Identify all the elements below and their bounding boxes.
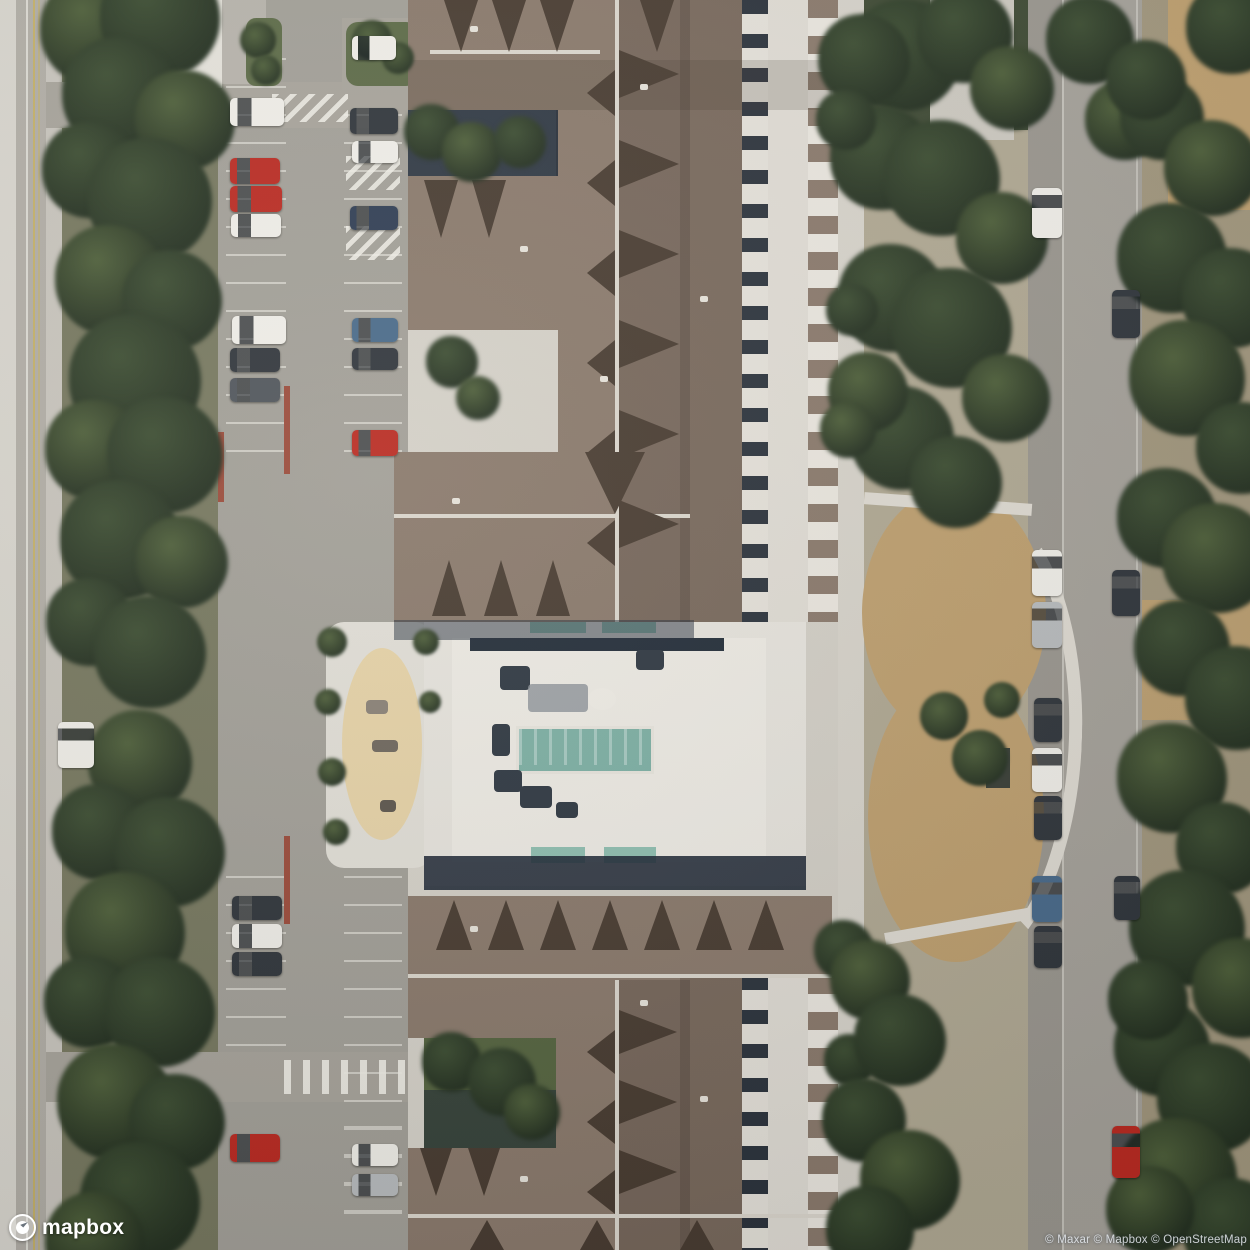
roof-gable	[619, 410, 679, 458]
parked-car	[1034, 698, 1062, 742]
pool-furniture	[636, 650, 664, 670]
parked-car	[1032, 188, 1062, 238]
satellite-map-canvas[interactable]: mapbox © Maxar © Mapbox © OpenStreetMap	[0, 0, 1250, 1250]
parked-car	[352, 1144, 398, 1166]
pool-lanes	[519, 729, 645, 765]
parked-car	[352, 141, 398, 163]
roof-gable	[470, 1220, 504, 1250]
roof-gable	[640, 0, 674, 52]
parked-car	[230, 378, 280, 402]
hot-tub	[588, 688, 616, 710]
roof-gable	[587, 1100, 615, 1144]
roof-gable	[580, 1220, 614, 1250]
roof-vent	[452, 498, 460, 504]
tree	[816, 90, 876, 150]
roof-gable	[540, 0, 574, 52]
roof-gable	[420, 1148, 452, 1196]
shrub	[952, 730, 1008, 786]
roof-gable	[748, 900, 784, 950]
roof-gable	[587, 1030, 615, 1074]
tree	[970, 46, 1054, 130]
tree	[94, 596, 206, 708]
roof-gable	[488, 900, 524, 950]
building-roof	[408, 976, 556, 1038]
pool-furniture	[528, 684, 588, 712]
roof-vent	[470, 26, 478, 32]
roof-gable	[424, 180, 458, 238]
tree	[910, 436, 1002, 528]
play-equipment	[372, 740, 398, 752]
tree	[826, 284, 878, 336]
tree	[456, 376, 500, 420]
parked-car	[230, 348, 280, 372]
parked-car	[230, 1134, 280, 1162]
tree	[1106, 40, 1186, 120]
roof-gable	[587, 70, 615, 116]
parked-car	[352, 36, 396, 60]
parked-car	[350, 206, 398, 230]
parked-car	[1112, 570, 1140, 616]
tree	[1164, 120, 1250, 216]
parked-car	[1032, 748, 1062, 792]
red-curb	[284, 386, 290, 474]
shrub	[419, 691, 441, 713]
tree	[136, 516, 228, 608]
lane-marking	[26, 0, 28, 1250]
roof-gable	[472, 180, 506, 238]
shrub	[251, 55, 281, 85]
building-shadow	[424, 856, 806, 890]
roof-gable	[587, 250, 615, 296]
aerial-imagery	[0, 0, 1250, 1250]
roof-gable	[436, 900, 472, 950]
play-equipment	[380, 800, 396, 812]
roof-gable	[619, 320, 679, 368]
roof-gable	[587, 520, 615, 566]
parked-car	[231, 214, 281, 237]
parked-car	[352, 430, 398, 456]
lane-marking	[38, 0, 40, 1250]
parked-car	[1032, 876, 1062, 922]
roof-gable	[432, 560, 466, 616]
parked-car	[352, 1174, 398, 1196]
shrub	[315, 689, 341, 715]
roof-gable	[540, 900, 576, 950]
parked-car	[1032, 602, 1062, 648]
roof-vent	[640, 84, 648, 90]
roof-gable	[585, 452, 645, 514]
balcony-row	[742, 976, 768, 1250]
roof-vent	[520, 1176, 528, 1182]
roof-gable	[484, 560, 518, 616]
ridge-line	[408, 1214, 832, 1218]
tree	[820, 402, 876, 458]
parked-car	[232, 924, 282, 948]
roof-gable	[619, 1080, 677, 1124]
pool-furniture	[494, 770, 522, 792]
shrub	[920, 692, 968, 740]
shrub	[413, 629, 439, 655]
roof-gable	[587, 160, 615, 206]
roof-gable	[619, 1150, 677, 1194]
roof-vent	[470, 926, 478, 932]
parked-car	[1112, 1126, 1140, 1178]
building-shadow	[394, 620, 694, 640]
parked-car	[352, 348, 398, 370]
parked-car	[230, 158, 280, 184]
tree	[494, 116, 546, 168]
parked-car	[1114, 876, 1140, 920]
mapbox-wordmark: mapbox	[42, 1216, 124, 1240]
parked-car	[1112, 290, 1140, 338]
play-equipment	[366, 700, 388, 714]
road-shoulder	[0, 0, 16, 1250]
shrub	[984, 682, 1020, 718]
pool-furniture	[492, 724, 510, 756]
tree	[442, 122, 502, 182]
parked-car	[1034, 926, 1062, 968]
parked-car	[352, 318, 398, 342]
roof-gable	[619, 1010, 677, 1054]
roof-gable	[619, 140, 679, 188]
parked-car	[232, 896, 282, 920]
parked-car	[1034, 796, 1062, 840]
roof-gable	[680, 1220, 714, 1250]
tree	[504, 1084, 560, 1140]
mapbox-logo-icon	[9, 1214, 36, 1241]
map-attribution[interactable]: © Maxar © Mapbox © OpenStreetMap	[1045, 1234, 1247, 1246]
pool-furniture	[500, 666, 530, 690]
roof-vent	[700, 296, 708, 302]
roof-gable	[536, 560, 570, 616]
roof-gable	[592, 900, 628, 950]
shrub	[240, 22, 276, 58]
main-road-left	[16, 0, 46, 1250]
roof-vent	[520, 246, 528, 252]
tree	[1108, 960, 1188, 1040]
pool-furniture	[520, 786, 552, 808]
building-roof-white	[768, 976, 808, 1250]
roof-vent	[600, 376, 608, 382]
roof-gable	[644, 900, 680, 950]
roof-gable	[492, 0, 526, 52]
roof-gable	[468, 1148, 500, 1196]
parked-car	[232, 952, 282, 976]
tree	[962, 354, 1050, 442]
parked-car	[1032, 550, 1062, 596]
shrub	[318, 758, 346, 786]
hatched-zone	[346, 226, 400, 260]
pool-furniture	[556, 802, 578, 818]
parked-car	[350, 108, 398, 134]
ridge-line	[408, 974, 832, 978]
mapbox-logo[interactable]: mapbox	[9, 1214, 124, 1241]
tree	[854, 994, 946, 1086]
roof-gable	[619, 230, 679, 278]
lane-marking	[33, 0, 35, 1250]
roof-gable	[696, 900, 732, 950]
shrub	[317, 627, 347, 657]
parked-car	[232, 316, 286, 344]
shrub	[323, 819, 349, 845]
parked-car	[230, 98, 284, 126]
roof-vent	[640, 1000, 648, 1006]
parked-car	[230, 186, 282, 212]
roof-gable	[619, 50, 679, 98]
parked-car	[58, 722, 94, 768]
roof-gable	[587, 1170, 615, 1214]
roof-vent	[700, 1096, 708, 1102]
crosswalk	[284, 1060, 412, 1094]
red-curb	[284, 836, 290, 924]
